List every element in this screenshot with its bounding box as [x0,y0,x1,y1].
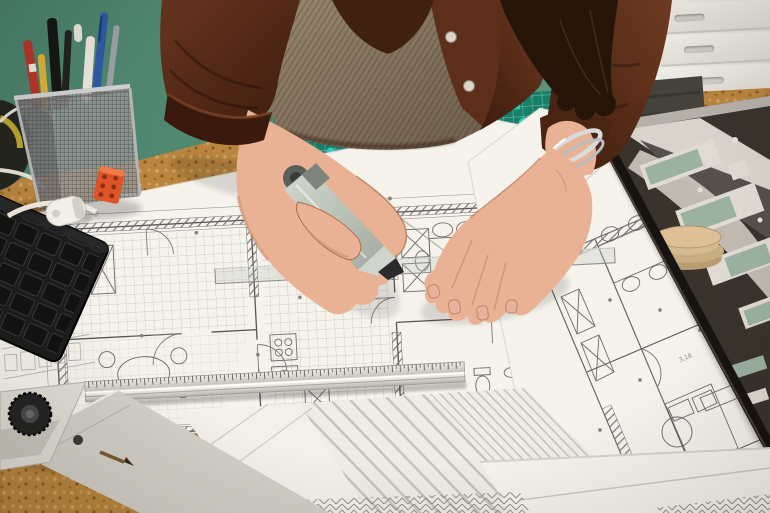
scene-artwork: 1,53 [0,0,770,513]
photo-architect-workspace: 1,53 [0,0,770,513]
pen-basket-cluster [0,12,142,234]
